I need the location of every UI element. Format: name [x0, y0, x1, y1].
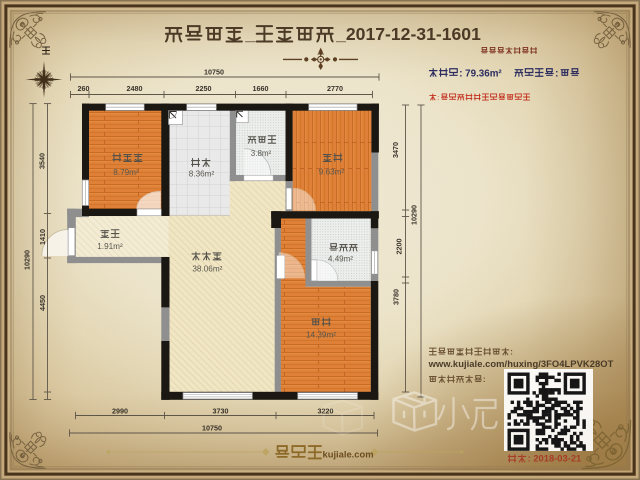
- svg-text:4450: 4450: [38, 295, 47, 311]
- svg-text:10290: 10290: [410, 205, 419, 225]
- svg-text::: :: [510, 347, 513, 357]
- svg-text:3.8m²: 3.8m²: [251, 149, 272, 158]
- svg-text::: :: [555, 68, 558, 79]
- svg-text:: 2018-03-21: : 2018-03-21: [528, 453, 582, 464]
- svg-text::: :: [483, 374, 486, 384]
- svg-text:1660: 1660: [253, 84, 269, 93]
- svg-text:10290: 10290: [23, 250, 32, 270]
- svg-text:4.49m²: 4.49m²: [328, 255, 353, 264]
- svg-text:10750: 10750: [204, 68, 224, 77]
- svg-text::: :: [437, 93, 439, 102]
- svg-text:2990: 2990: [112, 407, 128, 416]
- svg-text:kujiale.com: kujiale.com: [323, 449, 374, 460]
- svg-text:2480: 2480: [127, 84, 143, 93]
- svg-text:3780: 3780: [392, 289, 401, 305]
- svg-text:: 79.36m²: : 79.36m²: [459, 68, 502, 79]
- svg-text:260: 260: [78, 84, 90, 93]
- svg-text:8.79m²: 8.79m²: [113, 168, 139, 177]
- svg-text:1410: 1410: [38, 229, 47, 245]
- svg-text:www.kujiale.com/huxing/3FO4LPV: www.kujiale.com/huxing/3FO4LPVK28OT: [428, 358, 614, 369]
- svg-text:2200: 2200: [395, 239, 404, 255]
- svg-text:14.39m²: 14.39m²: [306, 331, 336, 340]
- svg-text:2250: 2250: [196, 84, 212, 93]
- svg-text:8.36m²: 8.36m²: [189, 170, 215, 179]
- svg-text:_: _: [244, 24, 256, 44]
- svg-text:3730: 3730: [213, 407, 229, 416]
- svg-text:10750: 10750: [202, 424, 222, 433]
- svg-text:3540: 3540: [37, 153, 46, 169]
- svg-text:3470: 3470: [391, 142, 400, 158]
- svg-text:2770: 2770: [327, 84, 343, 93]
- svg-text:_2017-12-31-1601: _2017-12-31-1601: [335, 24, 481, 44]
- svg-text:38.06m²: 38.06m²: [192, 265, 222, 274]
- svg-text:1.91m²: 1.91m²: [97, 242, 123, 251]
- svg-text:9.63m²: 9.63m²: [319, 167, 345, 176]
